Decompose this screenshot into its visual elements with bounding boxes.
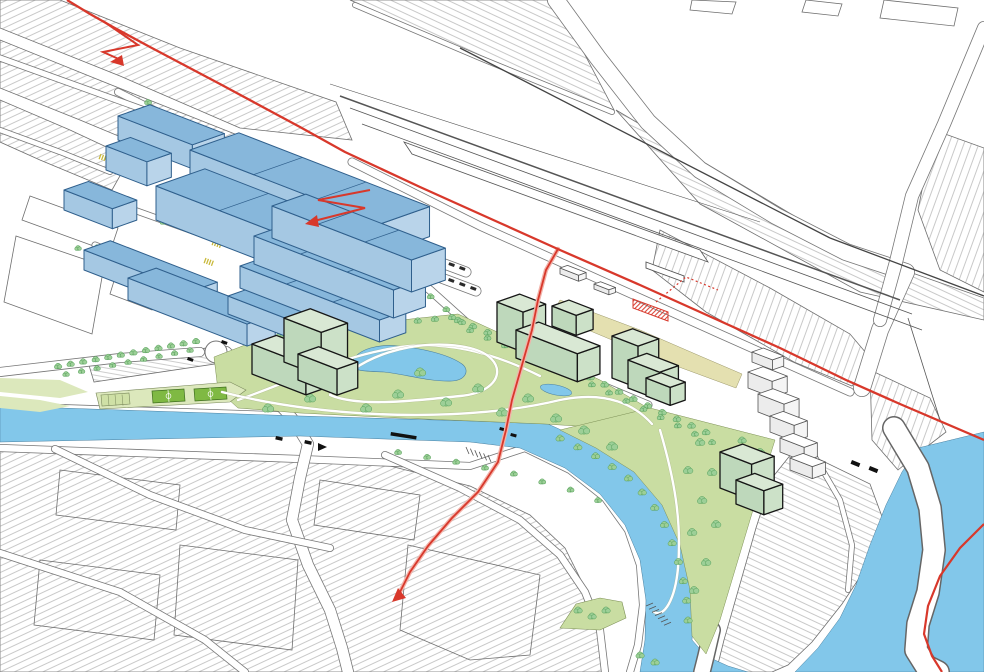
proposed-blue-buildings: [64, 105, 445, 347]
building: [646, 373, 685, 406]
pedestrian-crossing: [204, 258, 213, 266]
masterplan-canvas: [0, 0, 984, 672]
building: [64, 181, 137, 228]
masterplan-drawing: [0, 0, 984, 672]
